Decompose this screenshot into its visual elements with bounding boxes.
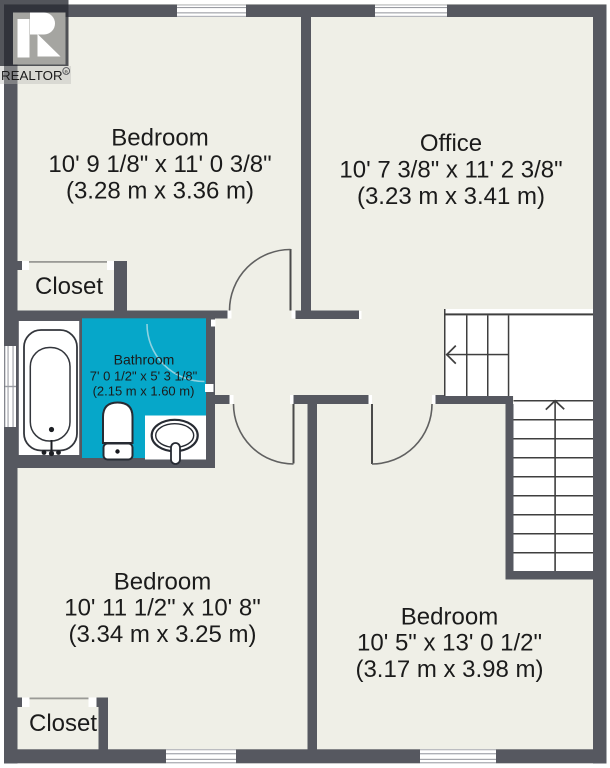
svg-text:Bedroom: Bedroom [114,569,211,596]
svg-text:(3.23 m x 3.41 m): (3.23 m x 3.41 m) [357,183,545,210]
svg-text:(2.15 m x 1.60 m): (2.15 m x 1.60 m) [93,384,195,399]
svg-text:Bathroom: Bathroom [114,352,175,368]
svg-text:10' 5" x 13' 0 1/2": 10' 5" x 13' 0 1/2" [357,630,542,657]
svg-text:(3.28 m x 3.36 m): (3.28 m x 3.36 m) [66,178,254,205]
svg-text:7' 0 1/2" x 5' 3 1/8": 7' 0 1/2" x 5' 3 1/8" [90,369,198,384]
svg-text:R: R [64,69,68,75]
svg-text:Office: Office [420,130,482,157]
svg-text:(3.17 m x 3.98 m): (3.17 m x 3.98 m) [355,656,543,683]
svg-text:Closet: Closet [29,710,97,737]
svg-text:10' 11 1/2" x 10' 8": 10' 11 1/2" x 10' 8" [64,595,261,622]
svg-text:REALTOR: REALTOR [1,68,63,83]
svg-text:(3.34 m x 3.25 m): (3.34 m x 3.25 m) [68,621,256,648]
svg-text:10' 9 1/8" x 11' 0 3/8": 10' 9 1/8" x 11' 0 3/8" [48,151,271,178]
svg-text:10' 7 3/8" x 11' 2 3/8": 10' 7 3/8" x 11' 2 3/8" [339,157,562,184]
svg-text:Bedroom: Bedroom [111,125,208,152]
svg-text:Closet: Closet [35,273,103,300]
svg-text:Bedroom: Bedroom [401,604,498,631]
